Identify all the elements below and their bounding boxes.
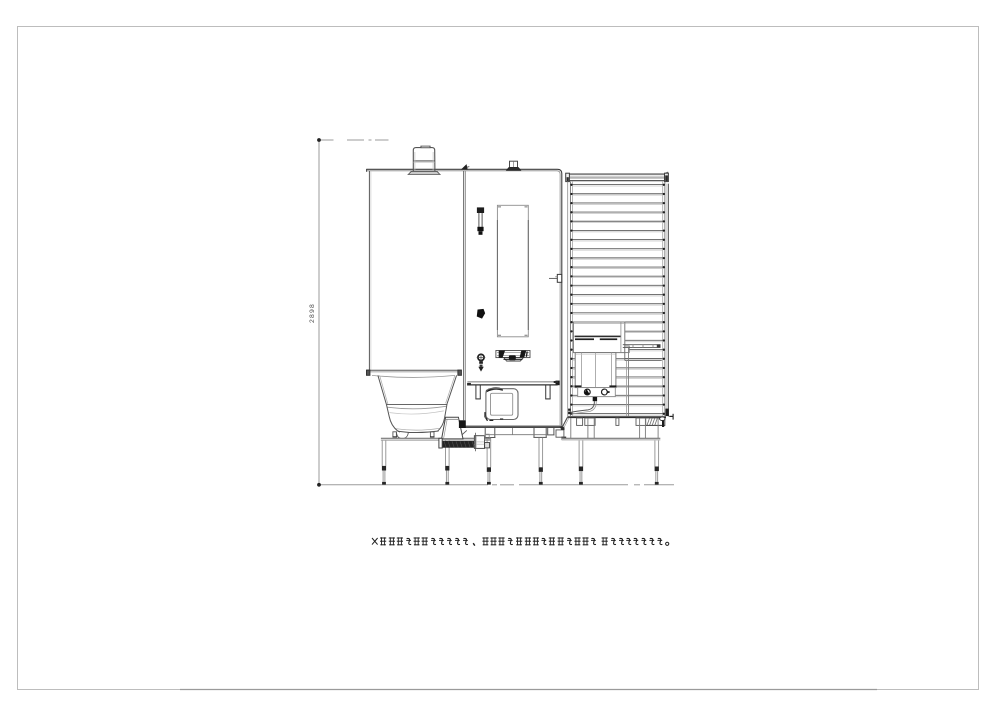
svg-text:2898: 2898 (309, 303, 316, 323)
